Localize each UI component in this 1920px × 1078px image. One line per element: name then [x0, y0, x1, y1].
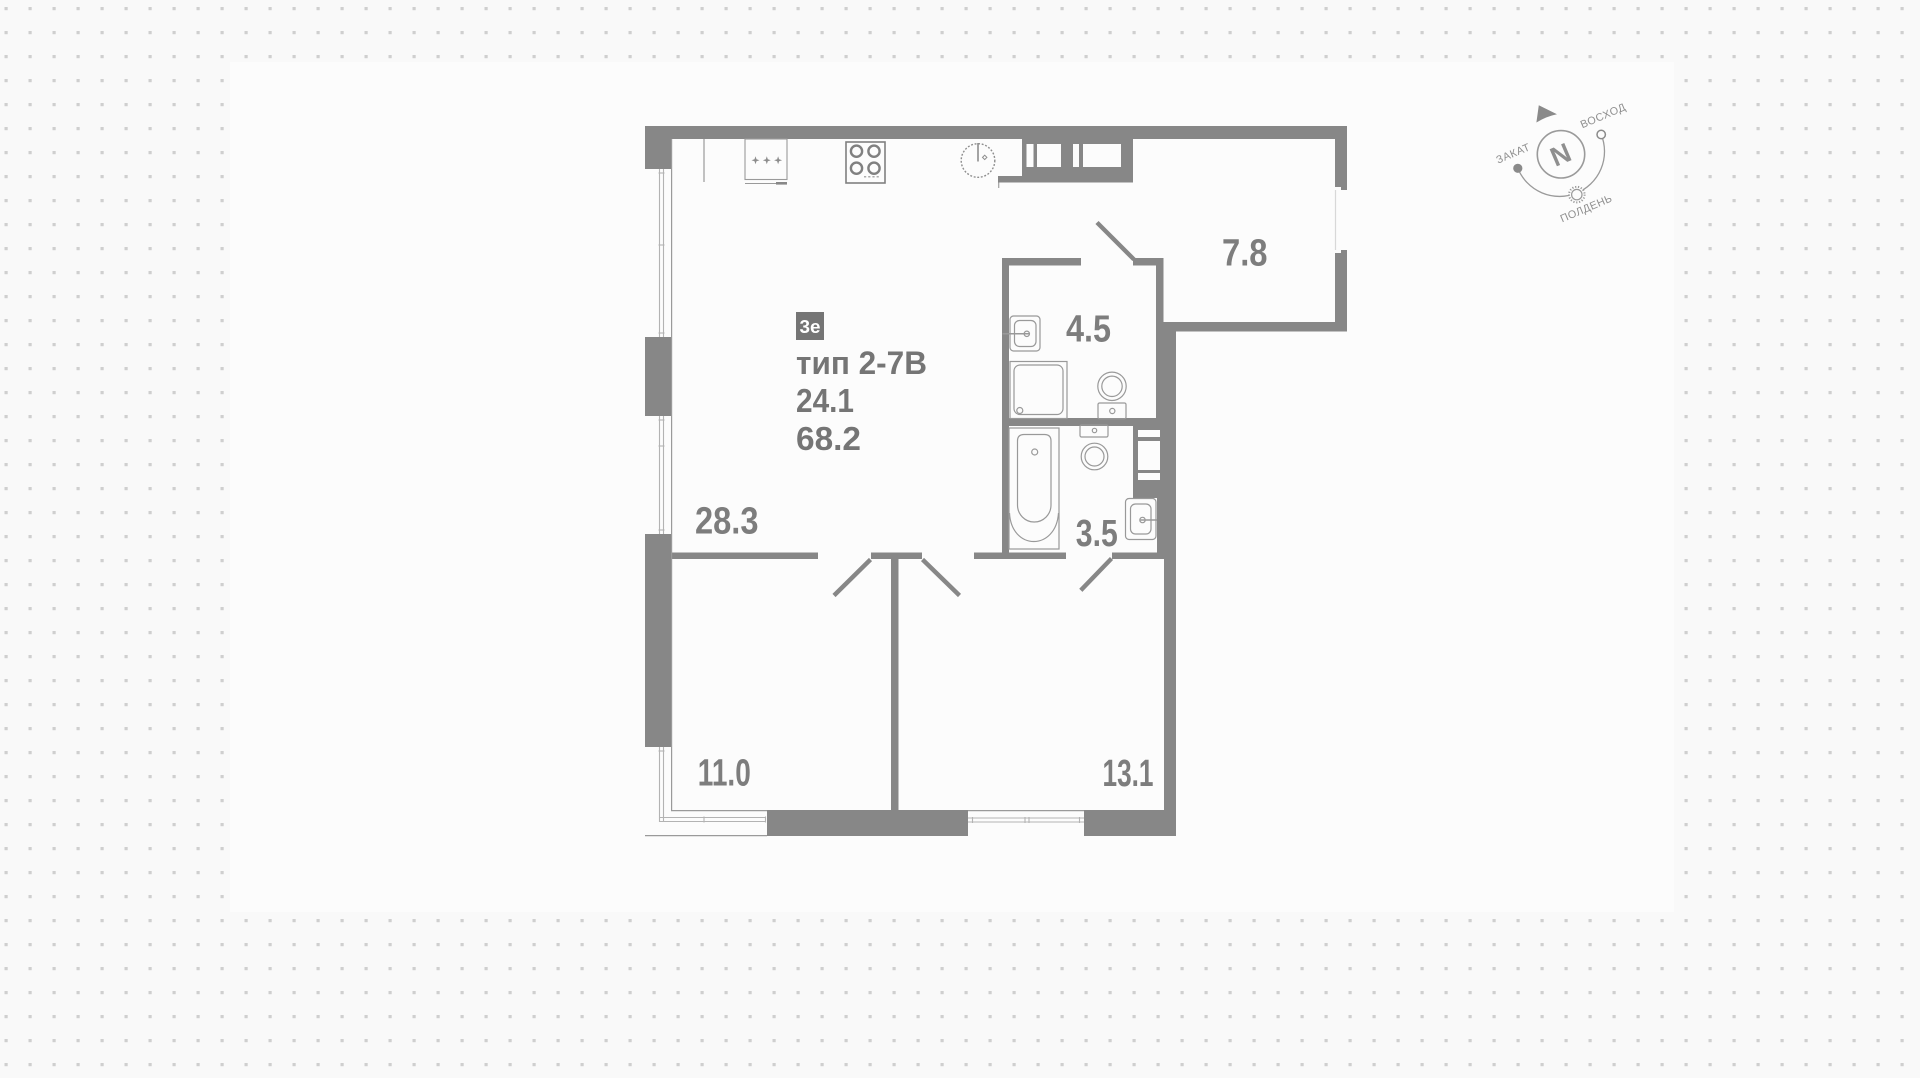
svg-text:24.1: 24.1	[796, 382, 854, 419]
svg-text:3.5: 3.5	[1076, 513, 1118, 555]
svg-text:4.5: 4.5	[1066, 309, 1111, 351]
svg-text:7.8: 7.8	[1222, 233, 1268, 275]
svg-text:13.1: 13.1	[1103, 753, 1154, 795]
svg-text:тип 2-7В: тип 2-7В	[796, 345, 927, 381]
svg-text:28.3: 28.3	[695, 500, 759, 542]
svg-text:3е: 3е	[800, 316, 821, 337]
svg-text:11.0: 11.0	[698, 753, 751, 795]
svg-text:68.2: 68.2	[796, 420, 861, 457]
